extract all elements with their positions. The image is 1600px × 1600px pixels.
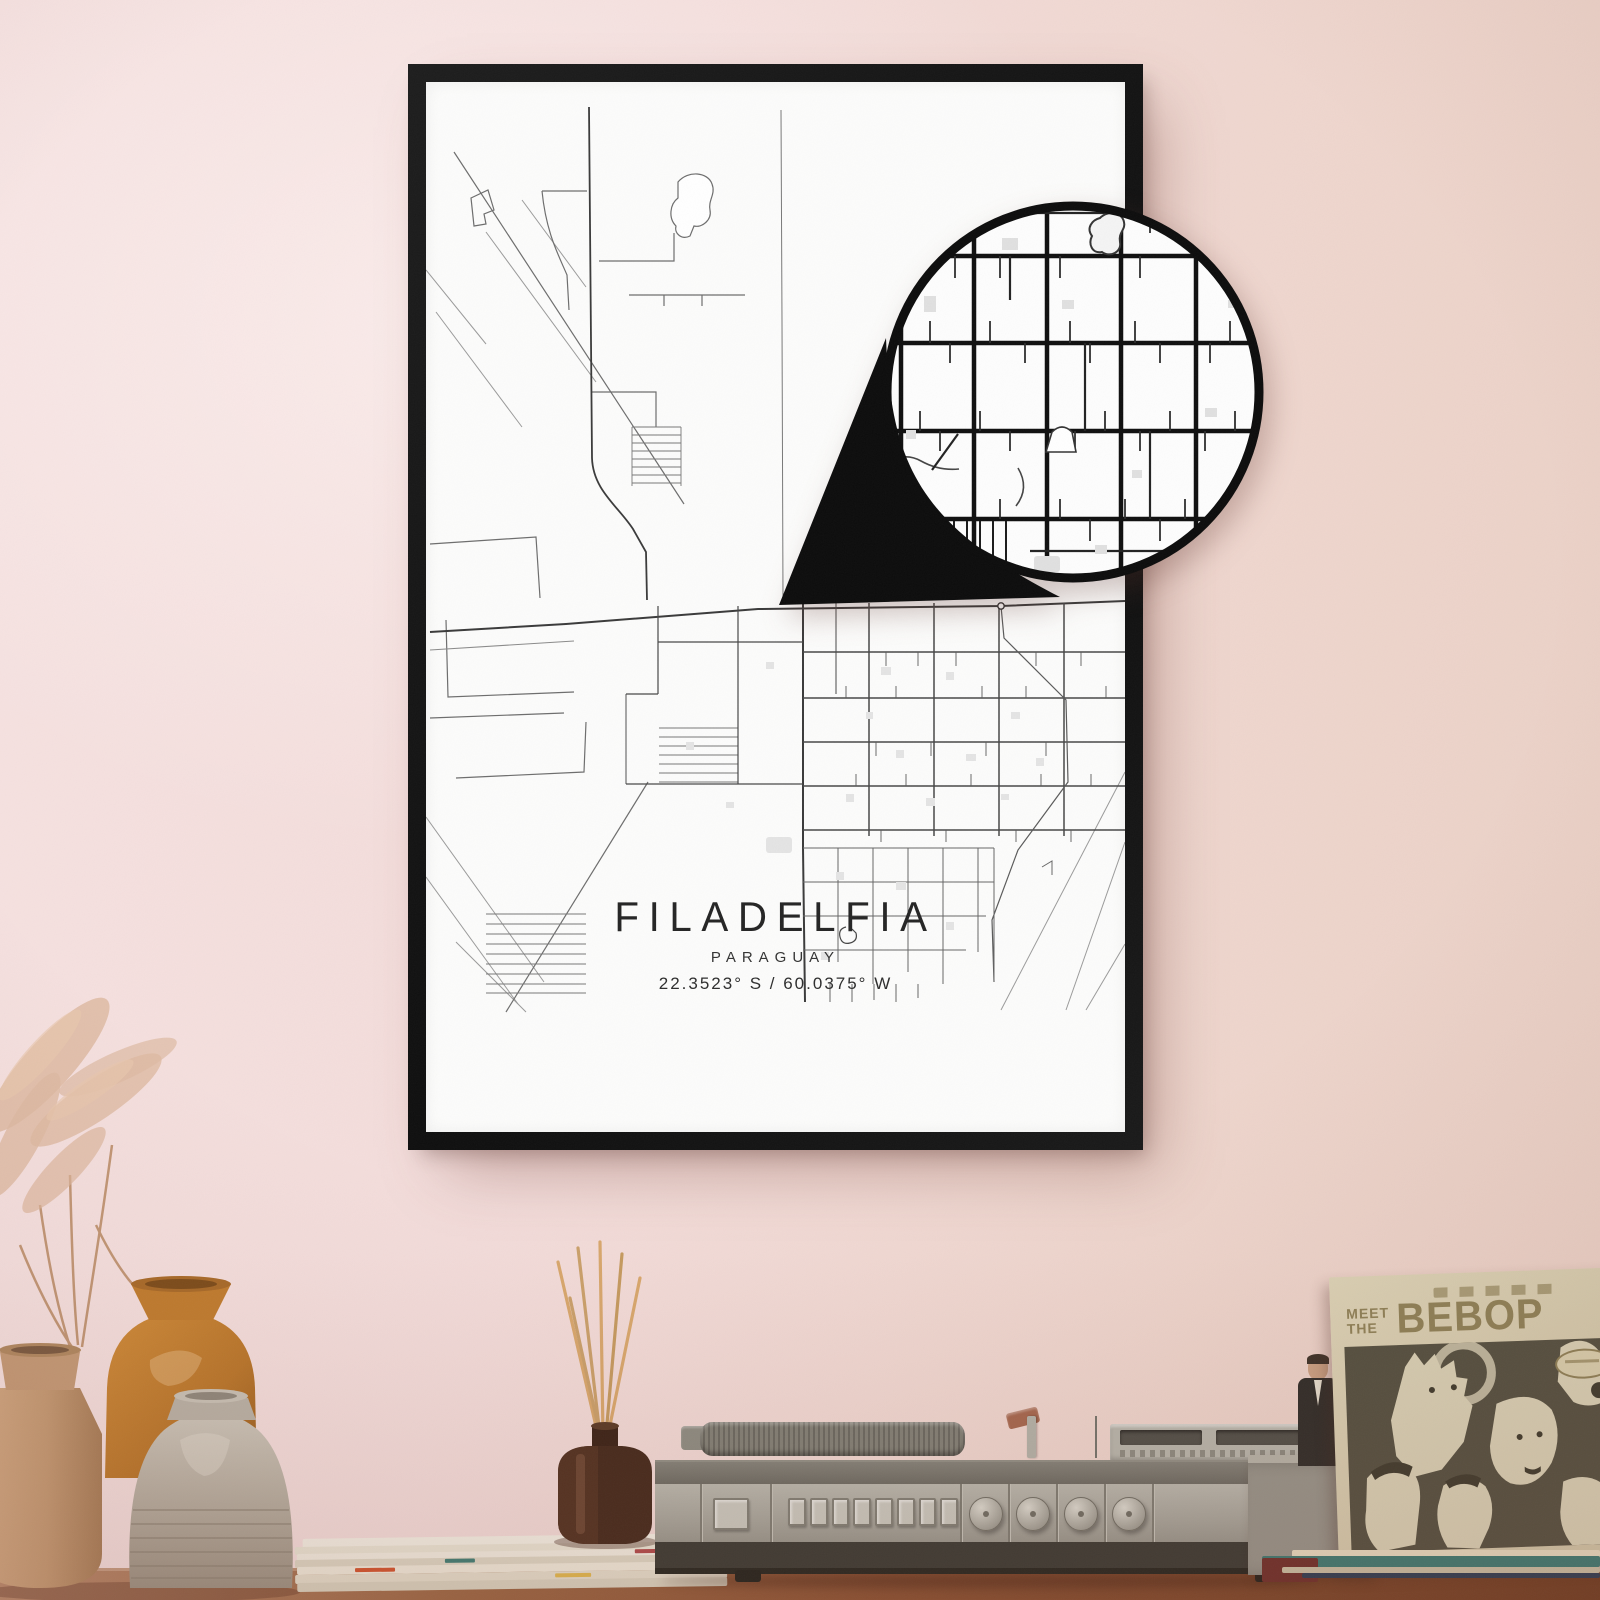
panel-seam <box>1056 1484 1058 1542</box>
ceramic-vases <box>0 1270 340 1600</box>
player-foot <box>735 1570 761 1582</box>
record-player <box>655 1410 1330 1590</box>
preset-button <box>853 1498 871 1526</box>
preset-button <box>788 1498 806 1526</box>
album-photo <box>1344 1337 1600 1553</box>
preset-button <box>810 1498 828 1526</box>
power-button <box>713 1498 749 1530</box>
panel-seam <box>1008 1484 1010 1542</box>
tan-vase <box>0 1343 102 1588</box>
poster-subtitle: PARAGUAY <box>426 949 1125 966</box>
preset-button-row <box>788 1498 958 1526</box>
player-top-edge <box>655 1460 1330 1486</box>
turntable-platter <box>700 1422 965 1456</box>
stacked-records <box>1262 1546 1600 1590</box>
preset-button <box>897 1498 915 1526</box>
figure-hair <box>1307 1354 1329 1364</box>
panel-seam <box>960 1484 962 1542</box>
preset-button <box>832 1498 850 1526</box>
panel-seam <box>770 1484 772 1542</box>
cassette-slot-left <box>1120 1430 1202 1445</box>
incense-reeds <box>558 1242 640 1435</box>
poster-title: FILADELFIA <box>440 894 1111 940</box>
album-title-prefix: MEET THE <box>1346 1305 1390 1336</box>
volume-knob <box>969 1497 1003 1531</box>
tuning-knob <box>1064 1497 1098 1531</box>
record-album: MEET THE BEBOP <box>1329 1267 1600 1572</box>
panel-seam <box>1104 1484 1106 1542</box>
selector-knob <box>1112 1497 1146 1531</box>
preset-button <box>875 1498 893 1526</box>
brown-bottle <box>558 1422 652 1544</box>
preset-button <box>940 1498 958 1526</box>
album-title-line2: THE <box>1347 1320 1390 1336</box>
cassette-slot-right <box>1216 1430 1300 1445</box>
preset-button <box>919 1498 937 1526</box>
poster-title-block: FILADELFIA PARAGUAY 22.3523° S / 60.0375… <box>426 894 1125 994</box>
poster-coordinates: 22.3523° S / 60.0375° W <box>426 974 1125 994</box>
reed-diffuser <box>540 1240 670 1550</box>
antenna <box>1095 1416 1097 1458</box>
magnifier-bubble <box>730 175 1305 630</box>
panel-seam <box>1152 1484 1154 1542</box>
map-boundaries <box>430 152 745 1012</box>
tonearm-post <box>1027 1416 1036 1458</box>
album-title-main: BEBOP <box>1396 1291 1545 1343</box>
room-scene: FILADELFIA PARAGUAY 22.3523° S / 60.0375… <box>0 0 1600 1600</box>
tone-knob <box>1016 1497 1050 1531</box>
panel-seam <box>700 1484 702 1542</box>
